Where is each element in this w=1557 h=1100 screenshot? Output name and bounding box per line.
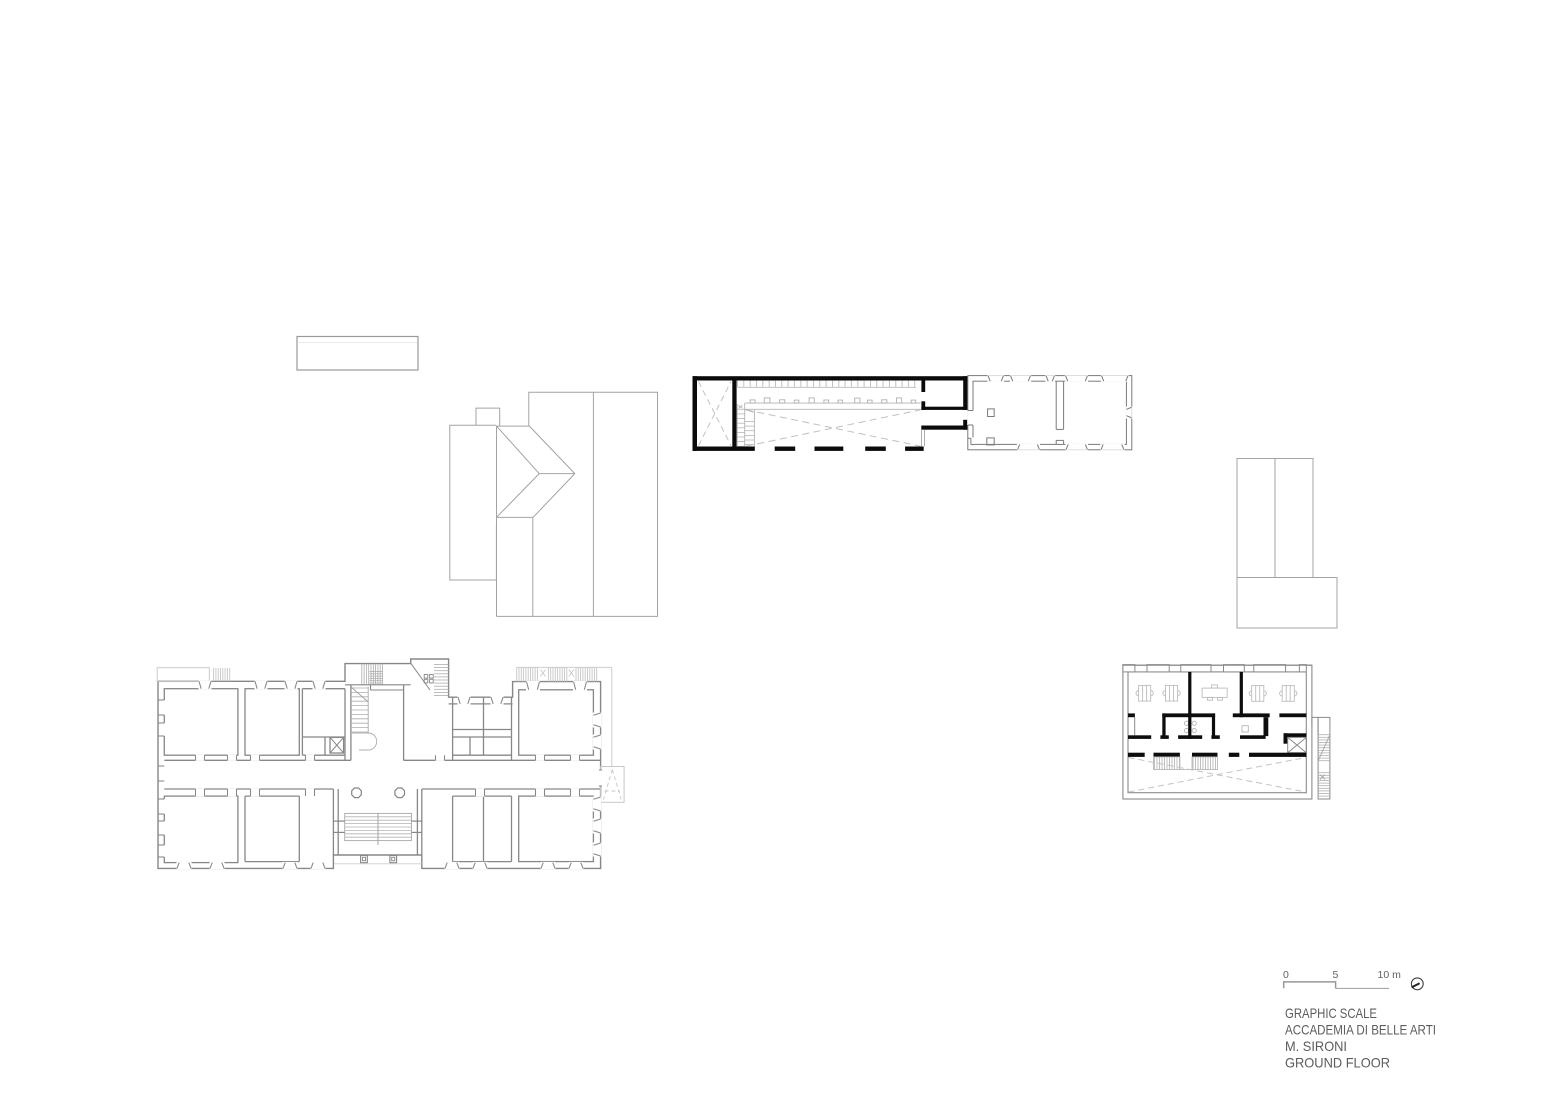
svg-text:ACCADEMIA DI BELLE ARTI: ACCADEMIA DI BELLE ARTI [1285,1022,1436,1038]
svg-text:GRAPHIC SCALE: GRAPHIC SCALE [1285,1005,1377,1021]
svg-text:5: 5 [1333,969,1339,981]
svg-text:0: 0 [1283,969,1289,981]
svg-text:10 m: 10 m [1378,969,1402,981]
svg-text:GROUND FLOOR: GROUND FLOOR [1285,1054,1390,1070]
svg-text:M. SIRONI: M. SIRONI [1285,1038,1347,1054]
